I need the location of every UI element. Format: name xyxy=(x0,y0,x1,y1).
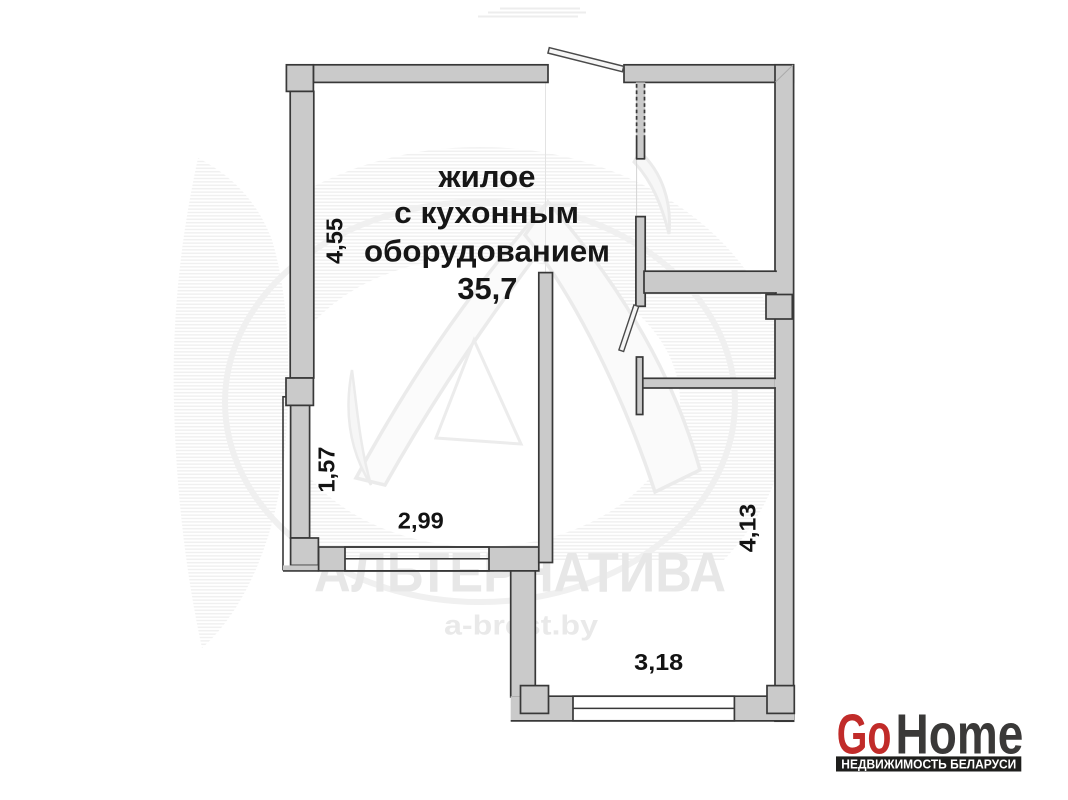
svg-text:с кухонным: с кухонным xyxy=(394,195,579,230)
svg-text:НЕДВИЖИМОСТЬ БЕЛАРУСИ: НЕДВИЖИМОСТЬ БЕЛАРУСИ xyxy=(841,757,1016,771)
svg-text:35,7: 35,7 xyxy=(457,271,517,306)
svg-text:3,18: 3,18 xyxy=(634,649,683,675)
svg-text:4,13: 4,13 xyxy=(735,504,761,553)
svg-text:4,55: 4,55 xyxy=(321,218,347,264)
svg-text:1,57: 1,57 xyxy=(313,447,339,493)
svg-text:оборудованием: оборудованием xyxy=(364,234,610,269)
svg-text:Go: Go xyxy=(837,702,892,765)
svg-text:жилое: жилое xyxy=(437,159,535,194)
svg-text:Home: Home xyxy=(896,702,1024,765)
svg-text:2,99: 2,99 xyxy=(398,507,444,533)
